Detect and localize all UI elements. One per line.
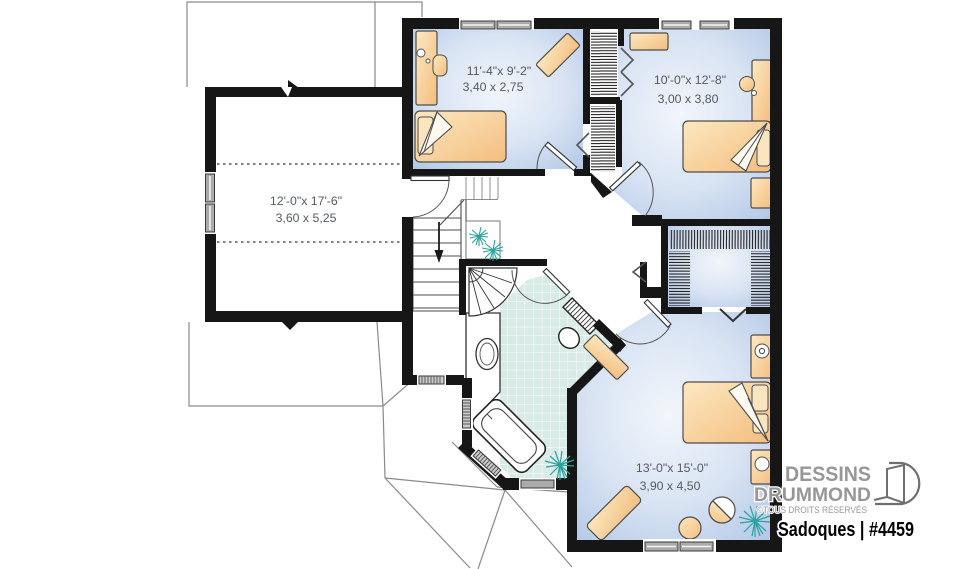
svg-text:©TOUS DROITS RÉSERVÉS: ©TOUS DROITS RÉSERVÉS — [757, 505, 867, 515]
svg-text:3,40 x 2,75: 3,40 x 2,75 — [463, 80, 524, 94]
svg-text:13'-0"x 15'-0": 13'-0"x 15'-0" — [636, 461, 708, 475]
svg-text:12'-0"x 17'-6": 12'-0"x 17'-6" — [270, 194, 342, 208]
svg-text:10'-0"x 12'-8": 10'-0"x 12'-8" — [654, 73, 726, 87]
svg-text:3,90 x 4,50: 3,90 x 4,50 — [640, 479, 701, 493]
svg-text:DESSINS: DESSINS — [785, 463, 871, 486]
svg-text:DRUMMOND: DRUMMOND — [754, 485, 871, 506]
svg-text:3,60 x 5,25: 3,60 x 5,25 — [276, 211, 337, 225]
svg-text:Sadoques | #4459: Sadoques | #4459 — [778, 519, 914, 541]
svg-text:3,00 x 3,80: 3,00 x 3,80 — [658, 92, 719, 106]
svg-text:11'-4"x 9'-2": 11'-4"x 9'-2" — [467, 64, 531, 78]
